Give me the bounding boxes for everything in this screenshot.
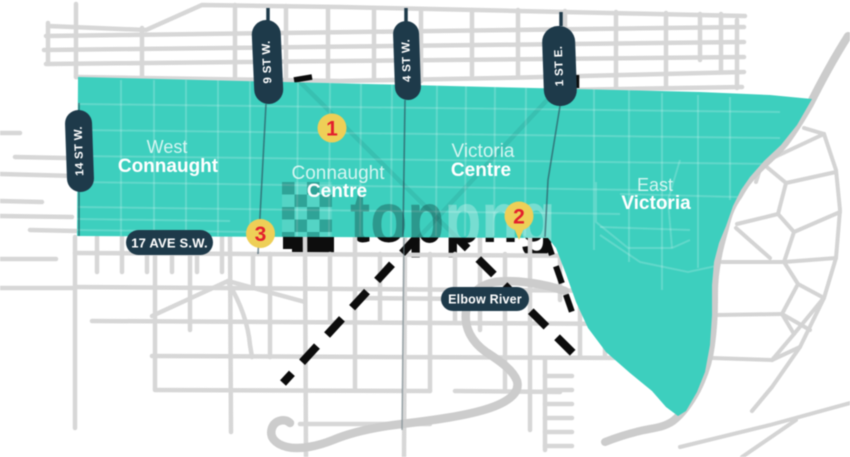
svg-text:14 ST W.: 14 ST W. — [73, 126, 87, 176]
svg-text:17 AVE S.W.: 17 AVE S.W. — [131, 236, 208, 251]
svg-text:4 ST W.: 4 ST W. — [400, 39, 413, 82]
svg-text:Victoria: Victoria — [621, 193, 691, 214]
svg-text:Centre: Centre — [307, 181, 367, 202]
svg-text:Centre: Centre — [451, 160, 511, 181]
svg-text:1 ST E.: 1 ST E. — [553, 46, 566, 87]
svg-text:East: East — [637, 175, 673, 195]
svg-text:Elbow River: Elbow River — [448, 293, 522, 307]
svg-text:Victoria: Victoria — [451, 141, 514, 162]
svg-text:3: 3 — [255, 223, 267, 246]
svg-text:Connaught: Connaught — [118, 156, 219, 177]
svg-text:2: 2 — [513, 206, 525, 229]
svg-text:West: West — [147, 137, 188, 157]
svg-text:1: 1 — [326, 118, 338, 141]
svg-text:9 ST W.: 9 ST W. — [261, 40, 275, 83]
